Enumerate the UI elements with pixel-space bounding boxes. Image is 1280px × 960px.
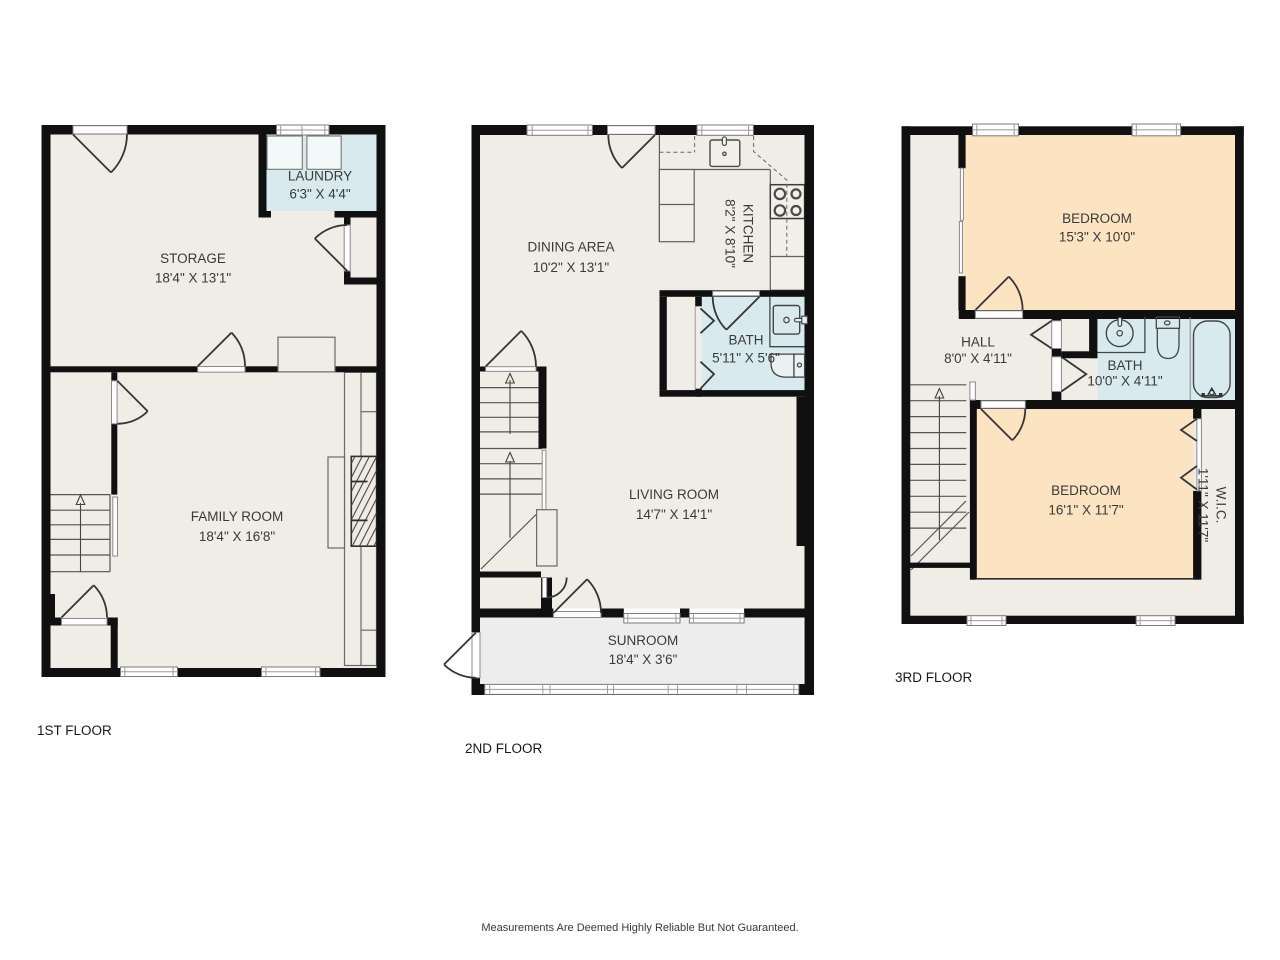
svg-text:2ND FLOOR: 2ND FLOOR xyxy=(465,741,543,756)
svg-text:10'2" X 13'1": 10'2" X 13'1" xyxy=(533,260,610,275)
svg-text:8'0" X 4'11": 8'0" X 4'11" xyxy=(944,351,1012,366)
svg-text:5'11" X 5'6": 5'11" X 5'6" xyxy=(712,351,780,366)
svg-text:STORAGE: STORAGE xyxy=(160,251,226,266)
svg-text:BEDROOM: BEDROOM xyxy=(1062,211,1132,226)
svg-text:1'11" X 11'7": 1'11" X 11'7" xyxy=(1196,468,1211,542)
svg-text:18'4" X 3'6": 18'4" X 3'6" xyxy=(609,652,678,667)
svg-text:DINING AREA: DINING AREA xyxy=(527,240,614,255)
svg-text:BEDROOM: BEDROOM xyxy=(1051,483,1121,498)
svg-text:FAMILY ROOM: FAMILY ROOM xyxy=(191,509,284,524)
svg-text:16'1" X 11'7": 16'1" X 11'7" xyxy=(1048,503,1123,518)
svg-text:LAUNDRY: LAUNDRY xyxy=(288,169,352,184)
svg-text:BATH: BATH xyxy=(1107,358,1142,373)
svg-text:14'7" X 14'1": 14'7" X 14'1" xyxy=(636,507,713,522)
svg-text:LIVING ROOM: LIVING ROOM xyxy=(629,487,719,502)
svg-text:15'3" X 10'0": 15'3" X 10'0" xyxy=(1059,230,1136,245)
svg-text:W.I.C.: W.I.C. xyxy=(1214,487,1229,524)
svg-text:KITCHEN: KITCHEN xyxy=(741,204,756,263)
svg-text:3RD FLOOR: 3RD FLOOR xyxy=(895,670,973,685)
svg-text:HALL: HALL xyxy=(961,335,995,350)
svg-text:6'3" X 4'4": 6'3" X 4'4" xyxy=(289,187,350,202)
svg-text:SUNROOM: SUNROOM xyxy=(608,633,679,648)
svg-text:Measurements Are Deemed Highly: Measurements Are Deemed Highly Reliable … xyxy=(481,922,798,934)
svg-text:8'2" X 8'10": 8'2" X 8'10" xyxy=(723,199,738,268)
svg-text:BATH: BATH xyxy=(728,333,763,348)
svg-text:10'0" X 4'11": 10'0" X 4'11" xyxy=(1087,373,1162,388)
svg-text:1ST FLOOR: 1ST FLOOR xyxy=(37,723,112,738)
svg-text:18'4" X 16'8": 18'4" X 16'8" xyxy=(199,529,276,544)
svg-text:18'4" X 13'1": 18'4" X 13'1" xyxy=(155,271,232,286)
